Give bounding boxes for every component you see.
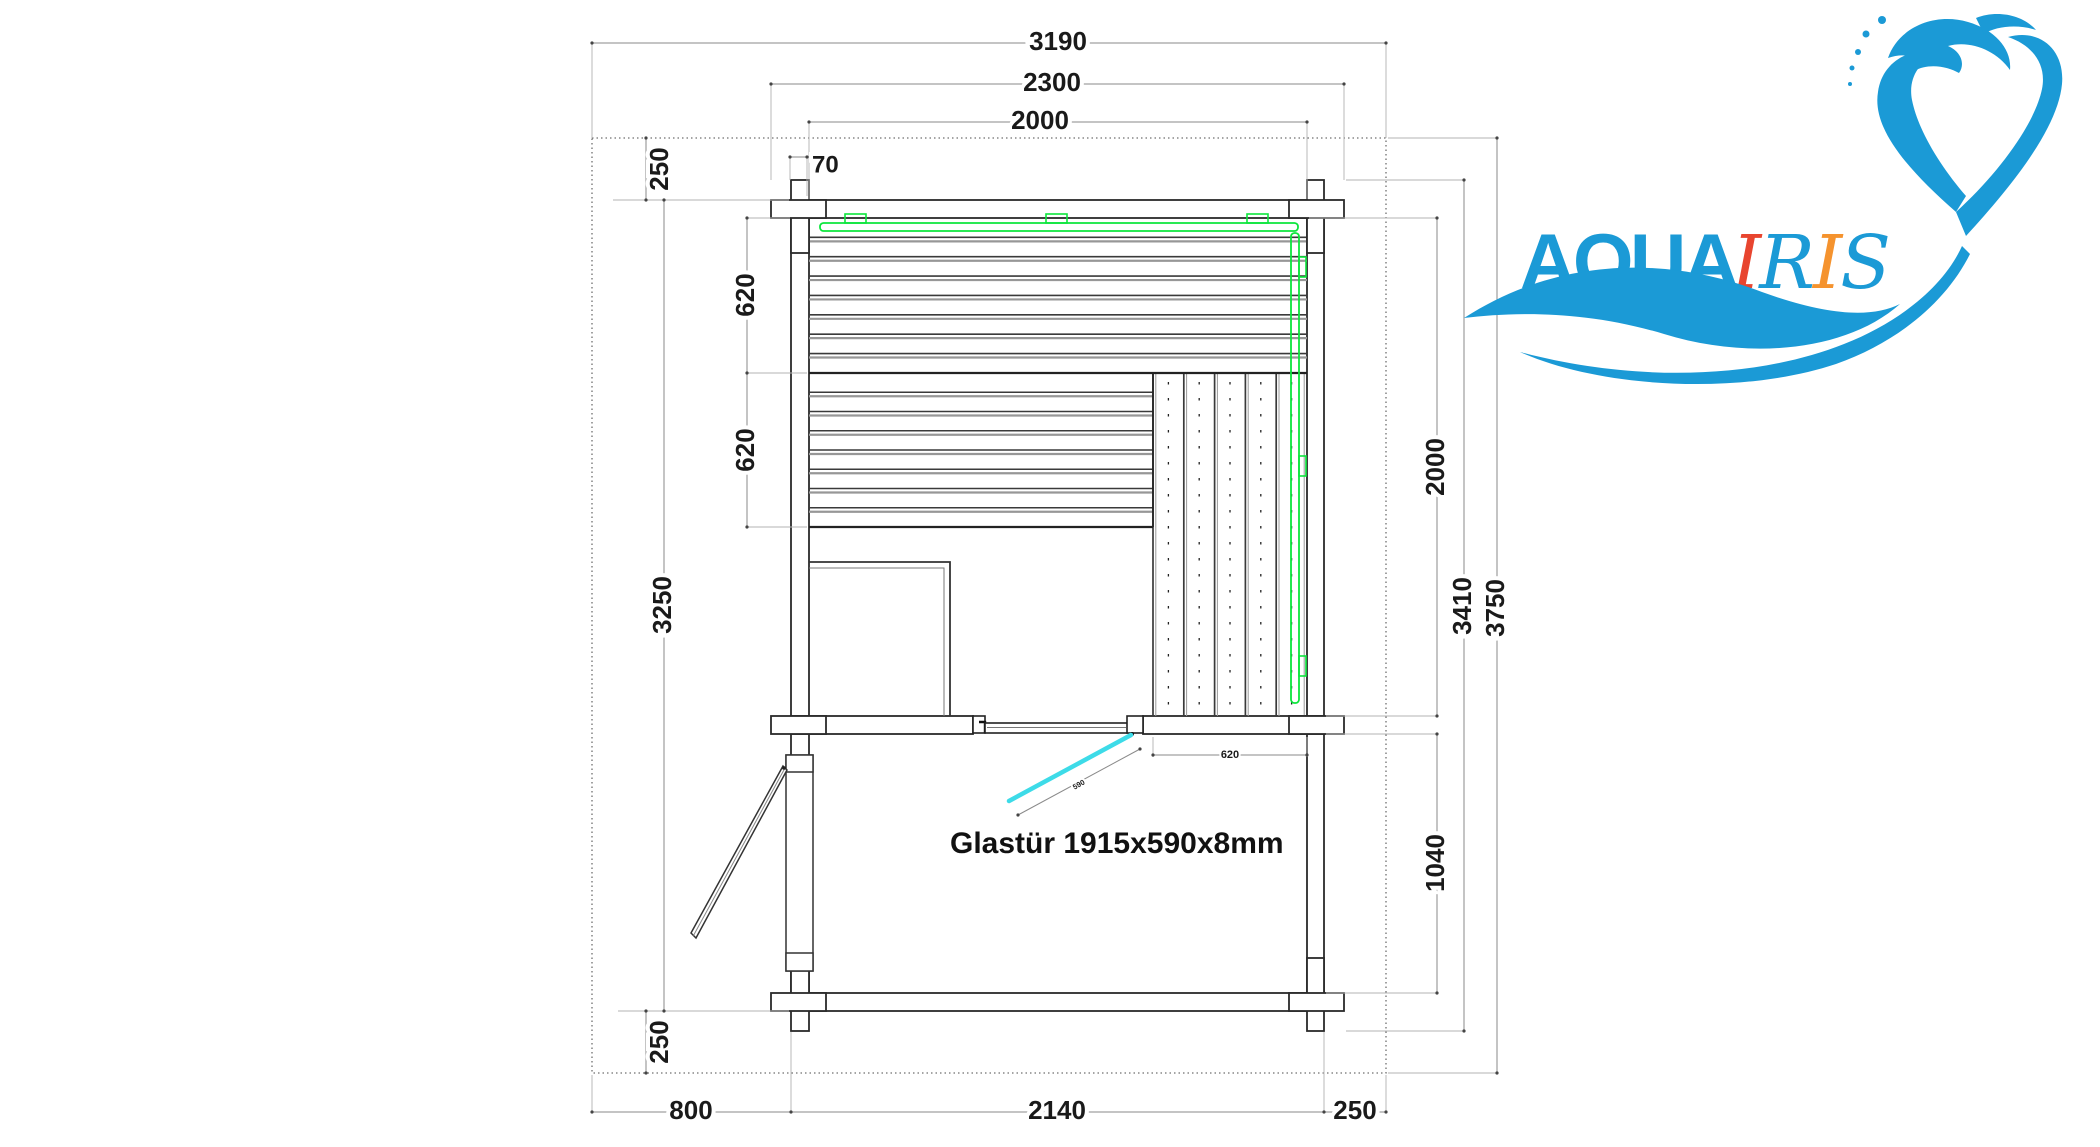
logo-letter: S [1840,220,1889,306]
log-walls [791,200,1324,1011]
dimension-labels: 3190 2300 2000 250 70 620 620 3250 250 2… [644,26,1510,1125]
dim-label-log-span-depth: 3410 [1447,577,1477,635]
dimension-tick [1462,1029,1465,1032]
dimension-tick [1435,714,1438,717]
dim-label-wall-thickness: 70 [812,151,839,178]
wall-right [1307,200,1324,1011]
led-strip-right [1291,233,1299,703]
dim-label-interior-width: 2000 [1011,105,1069,135]
led-strips [820,214,1306,703]
dimension-tick [1435,732,1438,735]
wall-top [791,200,1324,218]
dimension-tick [745,216,748,219]
heater-platform-inner [809,568,944,716]
wall-bottom [791,993,1324,1011]
log-corner-joints [771,180,1344,1031]
dim-label-total-depth: 3750 [1480,579,1510,637]
roof-outline-dotted [592,138,1386,1073]
dimension-tick [1342,82,1345,85]
dimension-tick [1322,1110,1325,1113]
entrance-door-leaf-inner [694,768,786,936]
dim-label-overhang-top: 250 [644,147,674,190]
door-frame-head [786,755,813,772]
wall-left-upper [791,200,809,757]
led-clip [1299,456,1306,476]
dim-label-log-span-width: 2300 [1023,67,1081,97]
entrance-door-hinge [782,766,786,770]
dimension-tick [1462,178,1465,181]
glass-door-open-leaf [1009,735,1131,801]
led-clip [1299,656,1306,676]
dimension-tick [807,120,810,123]
log-end [771,716,826,734]
logo-letter: I [1811,220,1844,306]
dim-label-building-depth: 3250 [647,576,677,634]
dim-label-front-room-depth: 1040 [1420,834,1450,892]
door-jamb-left [973,716,985,733]
dim-label-right-offset: 250 [1333,1095,1376,1125]
dimension-tick [1138,747,1141,750]
dimension-tick [590,41,593,44]
dim-label-sauna-interior-depth: 2000 [1420,438,1450,496]
heater-platform [809,562,950,716]
log-end [771,200,826,218]
glass-door [973,716,1143,801]
aqua-iris-logo: AQUA IRIS [1464,14,2062,384]
door-jamb-right [1127,716,1143,733]
sauna-floorplan-drawing: 3190 2300 2000 250 70 620 620 3250 250 2… [0,0,2100,1147]
dimension-tick [590,1110,593,1113]
led-strip-top [820,223,1298,231]
dimension-tick [1435,991,1438,994]
dimension-tick [662,198,665,201]
bench-slats [809,237,1307,716]
dim-label-total-width: 3190 [1029,26,1087,56]
dim-label-side-bench-width: 620 [1221,749,1239,761]
logo-letter: R [1757,220,1813,306]
dimension-tick [1384,1110,1387,1113]
dimension-tick [644,198,647,201]
dimension-tick [805,155,808,158]
dim-label-overhang-bottom: 250 [644,1020,674,1063]
dimension-tick [1151,753,1154,756]
log-end [771,993,826,1011]
dimension-tick [644,1009,647,1012]
dimension-tick [1495,136,1498,139]
dim-label-bench-depth-upper: 620 [730,273,760,316]
dimension-tick [644,1071,647,1074]
dim-label-left-offset: 800 [669,1095,712,1125]
dimension-tick [769,82,772,85]
dimension-tick [788,155,791,158]
dimension-tick [1435,216,1438,219]
entrance-door [691,755,813,971]
dimension-tick [745,371,748,374]
heater-platform-outer [809,562,950,716]
dimension-tick [1305,120,1308,123]
logo-heart-splash [1848,14,2062,236]
log-end [1289,993,1344,1011]
door-frame-sill [786,953,813,971]
dimension-tick [644,136,647,139]
dimension-tick [1495,1071,1498,1074]
dimension-tick [1305,753,1308,756]
log-end [1289,200,1344,218]
door-frame [786,755,813,971]
dimension-tick [789,1110,792,1113]
glass-door-annotation: Glastür 1915x590x8mm [950,827,1284,860]
dimension-tick [1384,41,1387,44]
dimension-tick [745,525,748,528]
dim-label-building-width: 2140 [1028,1095,1086,1125]
dimension-tick [1016,813,1019,816]
dim-label-bench-depth-lower: 620 [730,428,760,471]
log-end [1289,716,1344,734]
dimension-tick [662,1009,665,1012]
